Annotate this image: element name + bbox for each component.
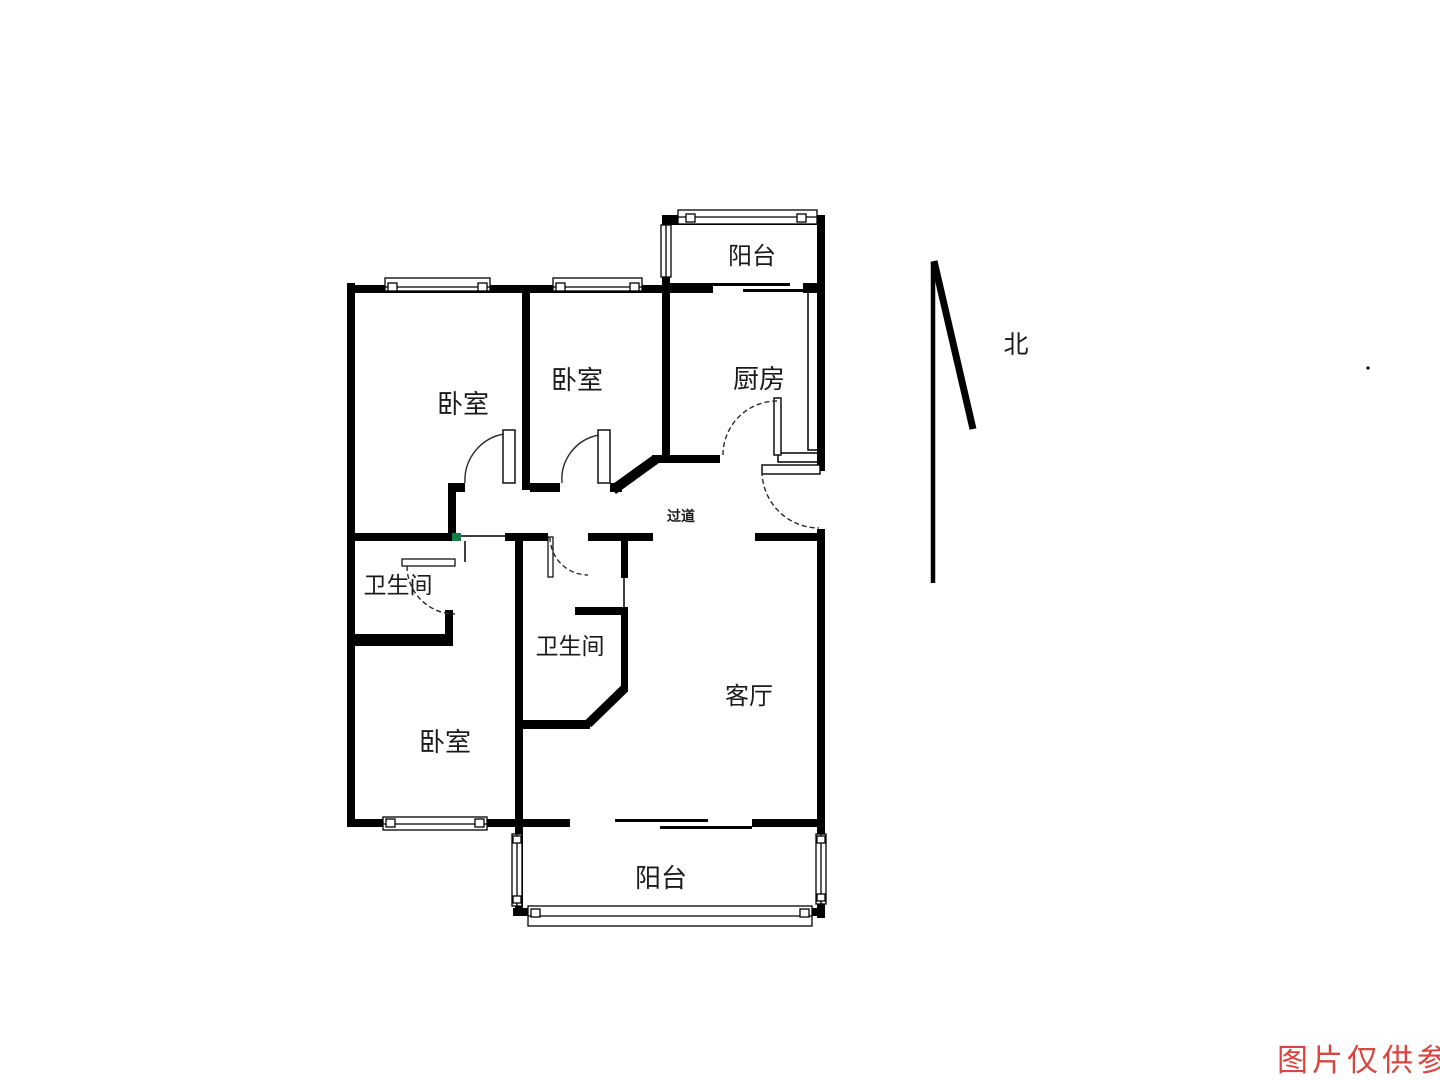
window-balcony-bottom [528,906,812,926]
label-bedroom-bottom: 卧室 [419,728,471,757]
window-bedroom-bottom [383,817,487,830]
doors [402,398,820,614]
window-bedroom-top-left [385,278,490,291]
door-bedroom-top-left [465,430,515,483]
window-balcony-top-left [661,225,671,277]
north-label: 北 [1003,332,1028,359]
room-labels: 阳台 卧室 卧室 厨房 过道 卫生间 卫生间 客厅 卧室 阳台 [364,243,786,893]
label-balcony-bottom: 阳台 [635,864,687,893]
sliding-door-balcony-top [713,283,790,286]
floor-plan-canvas: 阳台 卧室 卧室 厨房 过道 卫生间 卫生间 客厅 卧室 阳台 北 图片仅供参考 [0,0,1440,1080]
windows [383,210,826,926]
door-entry [762,465,820,528]
window-balcony-top [678,210,817,224]
watermark-text: 图片仅供参考 [1277,1043,1440,1078]
label-living-room: 客厅 [725,683,773,710]
door-bedroom-top-mid [562,430,610,483]
door-bathroom-mid [548,537,588,577]
label-bedroom-top-mid: 卧室 [551,366,603,395]
label-bedroom-top-left: 卧室 [437,390,489,419]
window-balcony-bottom-right [816,834,826,904]
label-bathroom-mid: 卫生间 [536,634,605,659]
floor-plan-page: 阳台 卧室 卧室 厨房 过道 卫生间 卫生间 客厅 卧室 阳台 北 图片仅供参考 [0,0,1440,1080]
label-hallway: 过道 [667,508,695,525]
label-kitchen: 厨房 [733,365,785,394]
window-bedroom-top-mid [553,278,642,291]
green-marker [452,533,461,541]
door-kitchen [723,398,781,455]
north-arrow: 北 [933,261,1029,583]
kitchen-window [808,288,818,450]
sliding-door-balcony-bottom [615,819,708,822]
stray-dot [1366,366,1369,369]
window-balcony-bottom-left [512,834,522,906]
label-balcony-top: 阳台 [728,243,776,270]
label-bathroom-left: 卫生间 [364,573,433,598]
